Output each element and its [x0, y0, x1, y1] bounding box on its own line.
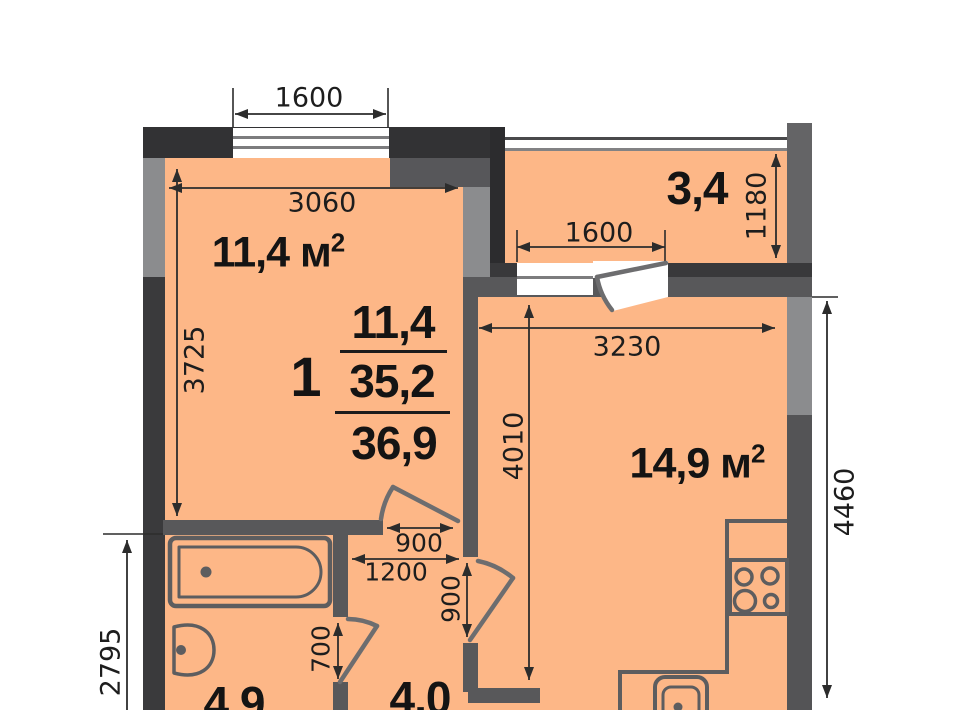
stove-burner-icon: [762, 568, 778, 584]
dim-kitchen-width: 3230: [593, 334, 662, 361]
floor-plan: 1600 3060 3725 1180 1600 3230 4010 4460 …: [0, 0, 960, 710]
dim-left-lower: 2795: [98, 628, 125, 697]
apartment-rooms-count: 1: [290, 349, 321, 405]
room-kitchen-label: 14,9 м2: [630, 440, 765, 485]
kitchen-sink-drain-icon: [674, 703, 683, 710]
dim-living-width: 3060: [288, 190, 357, 217]
fraction-divider: [335, 411, 450, 414]
dim-kitchen-door: 900: [439, 575, 464, 623]
door-kitchen-leaf: [470, 578, 513, 640]
stove-burner-icon: [736, 569, 752, 585]
dim-balcony-depth: 1180: [744, 172, 771, 241]
door-living-leaf: [393, 487, 458, 521]
stove-icon: [730, 560, 787, 614]
apartment-living-area: 11,4: [352, 299, 435, 345]
dim-living-door: 900: [395, 531, 443, 556]
door-kitchen-arc: [478, 561, 513, 578]
apartment-living-total: 35,2: [349, 358, 435, 404]
room-living-area: 11,4 м: [212, 229, 331, 277]
room-bathroom-label: 4,9: [204, 680, 265, 710]
room-kitchen-sup: 2: [751, 438, 764, 468]
room-living-label: 11,4 м2: [212, 229, 345, 274]
dim-kitchen-height: 4010: [501, 412, 528, 481]
fraction-divider: [340, 350, 447, 353]
dim-bathroom-door: 700: [309, 625, 334, 673]
dim-hallway-width: 1200: [364, 560, 428, 585]
stove-burner-icon: [765, 595, 778, 608]
dim-living-height: 3725: [182, 326, 209, 395]
room-kitchen-area: 14,9 м: [630, 440, 751, 488]
door-bathroom-leaf: [340, 626, 377, 682]
room-hallway-label: 4,0: [390, 675, 451, 710]
apartment-total-area: 36,9: [351, 420, 437, 466]
dim-balcony-window: 1600: [565, 220, 634, 247]
door-bathroom-arc: [348, 619, 377, 626]
plan-linework: [0, 0, 960, 710]
bathtub-drain-icon: [201, 567, 212, 578]
bathtub-inner-icon: [179, 547, 321, 597]
dim-right-side: 4460: [832, 468, 859, 537]
room-living-sup: 2: [331, 227, 344, 257]
washbasin-tap-icon: [176, 645, 186, 655]
stove-burner-icon: [735, 591, 756, 612]
room-balcony-label: 3,4: [667, 165, 728, 211]
dim-top-window: 1600: [275, 85, 344, 112]
door-living-arc: [381, 487, 393, 519]
